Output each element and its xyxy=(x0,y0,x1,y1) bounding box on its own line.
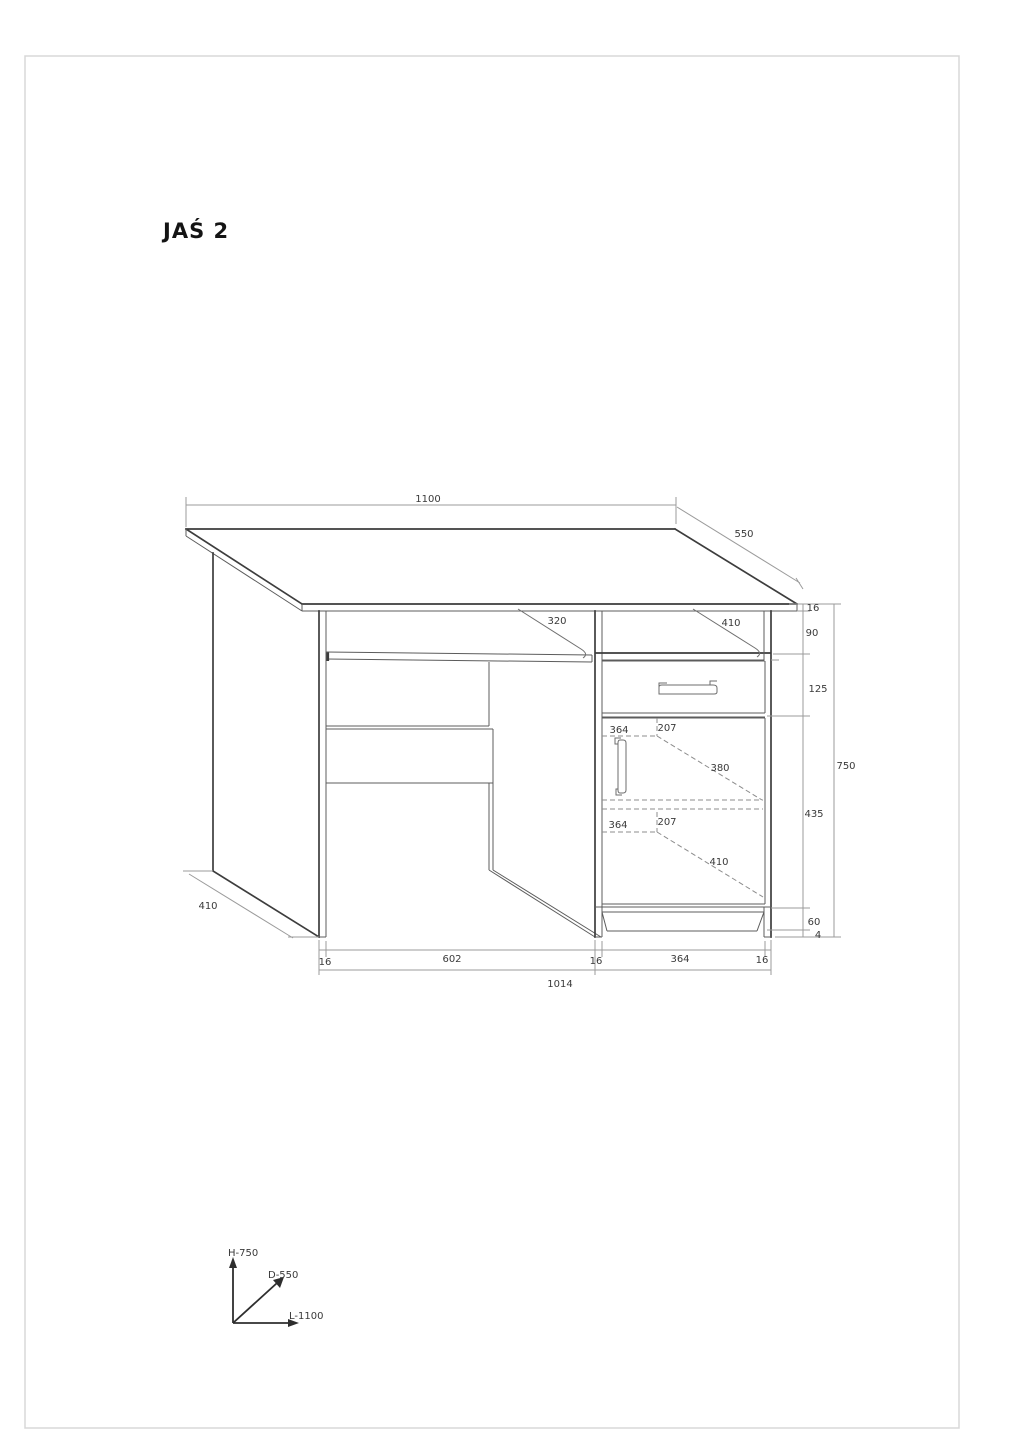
dim-base-mid-thickness-label: 16 xyxy=(590,956,603,967)
dim-base-left-thickness-label: 16 xyxy=(319,957,332,968)
axis-legend: H-750 D-550 L-1100 xyxy=(228,1248,323,1327)
axis-depth-label: D-550 xyxy=(268,1270,298,1281)
dim-bottom-rows xyxy=(319,940,771,975)
dim-right-column xyxy=(767,604,841,937)
dim-base-left-opening-label: 602 xyxy=(442,954,461,965)
plinth xyxy=(602,912,764,931)
dim-length-top-label: 1100 xyxy=(415,494,440,505)
cabinet-drawer xyxy=(602,661,765,717)
dim-door-inner-gap-upper-label: 207 xyxy=(657,723,676,734)
left-compartment-shelf-box xyxy=(326,726,493,783)
dim-base-cabinet-width-label: 364 xyxy=(670,954,689,965)
dim-door-bottom-depth-label: 410 xyxy=(709,857,728,868)
partition-wall xyxy=(489,662,601,937)
dim-keyboard-shelf-depth-label: 320 xyxy=(547,616,566,627)
dim-top-depth xyxy=(677,507,803,589)
dim-door-inner-width-lower-label: 364 xyxy=(608,820,627,831)
dim-door-shelf-depth-label: 380 xyxy=(710,763,729,774)
desktop xyxy=(186,529,797,611)
door-handle xyxy=(615,738,626,795)
drawer-handle xyxy=(659,681,717,694)
cabinet-door xyxy=(602,718,765,904)
dim-cabinet-top-depth-label: 410 xyxy=(721,618,740,629)
dim-base-total-label: 1014 xyxy=(547,979,572,990)
dim-floor-clearance-label: 4 xyxy=(815,930,821,941)
furniture-technical-drawing: JAŚ 2 xyxy=(0,0,1024,1449)
dim-door-height-label: 435 xyxy=(804,809,823,820)
dim-top-thickness-label: 16 xyxy=(807,603,820,614)
dim-total-height-label: 750 xyxy=(836,761,855,772)
dim-side-panel-depth-label: 410 xyxy=(198,901,217,912)
dim-depth-top-label: 550 xyxy=(734,529,753,540)
shelf-end-grain xyxy=(327,653,330,662)
dim-drawer-height-label: 125 xyxy=(808,684,827,695)
axis-height-label: H-750 xyxy=(228,1248,258,1259)
cabinet-carcass xyxy=(595,611,771,937)
dim-door-inner-gap-lower-label: 207 xyxy=(657,817,676,828)
dim-door-inner-width-upper-label: 364 xyxy=(609,725,628,736)
dim-plinth-height-label: 60 xyxy=(808,917,821,928)
dim-base-right-thickness-label: 16 xyxy=(756,955,769,966)
drawing-title: JAŚ 2 xyxy=(161,218,229,243)
page-border xyxy=(25,56,959,1428)
drawing-page: JAŚ 2 xyxy=(0,0,1024,1449)
keyboard-shelf xyxy=(326,652,592,662)
left-upright xyxy=(319,611,326,937)
axis-length-label: L-1100 xyxy=(289,1311,323,1322)
dim-under-top-gap-label: 90 xyxy=(806,628,819,639)
